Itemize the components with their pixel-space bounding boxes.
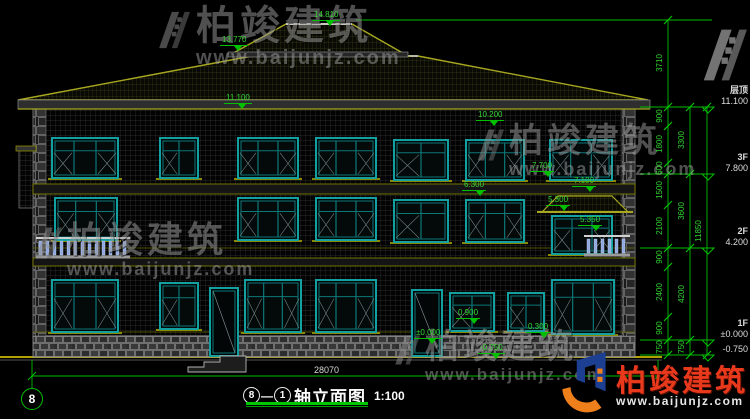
window [462,200,528,243]
window [462,140,528,181]
door [210,288,238,356]
dimension-value: 1500 [656,173,664,207]
watermark-logo-icon [704,30,747,81]
elevation-marker: ±0.000 [414,329,442,344]
window [48,138,122,179]
elevation-marker: -0.750 [478,344,505,359]
axis-dash: — [261,389,273,403]
axis-bubble-start: 8 [243,387,260,404]
elevation-marker: 7.700 [530,162,554,177]
title-scale: 1:100 [374,389,405,403]
window [241,280,305,333]
drawing-title: 8 — 1 轴立面图 1:100 [243,383,405,408]
level-label: 1F±0.000 [702,318,748,341]
elevation-marker: 0.300 [526,323,550,338]
window [546,140,616,181]
window [234,198,302,241]
cad-elevation-drawing: { "watermark": { "brand": "柏竣建筑", "url":… [0,0,750,419]
level-label: 3F7.800 [702,152,748,175]
window [48,280,122,333]
window [156,138,202,179]
window [312,280,380,333]
brand-logo: 柏竣建筑 www.baijunjz.com [558,350,750,419]
dimension-value: 2100 [656,209,664,243]
dimension-value: 4200 [678,277,686,311]
window [548,280,618,335]
window [234,138,302,179]
brand-url: www.baijunjz.com [616,394,744,408]
window [390,140,452,181]
upper-roof [228,24,408,57]
dimension-value: 3300 [678,123,686,157]
window [312,198,380,241]
axis-bubble-8: 8 [21,388,43,410]
elevation-marker: 14.810 [312,11,340,26]
axis-bubble-end: 1 [274,387,291,404]
elevation-marker: 7.100 [572,177,596,192]
overall-dimension: 28070 [314,365,339,375]
stone-base [33,336,635,357]
dimension-value: 900 [656,240,664,274]
elevation-marker: 5.350 [578,216,602,231]
window [156,283,202,330]
window [51,198,121,241]
main-roof [18,56,650,109]
level-label: 2F4.200 [702,226,748,249]
right-quoin [622,108,635,336]
dimension-value: 3600 [678,194,686,228]
level-label: 层顶11.100 [702,85,748,108]
title-text: 轴立面图 [294,383,366,408]
window [390,200,452,243]
elevation-marker: 13.770 [220,36,248,51]
brand-logo-icon [558,350,612,418]
elevation-marker: 11.100 [224,94,252,109]
dimension-value: 3710 [656,46,664,80]
elevation-marker: 10.200 [476,111,504,126]
window [312,138,380,179]
left-wall-projection [19,150,33,208]
elevation-marker: 0.900 [456,309,480,324]
left-quoin [33,108,46,336]
elevation-marker: 6.300 [462,181,486,196]
elevation-marker: 5.300 [546,196,570,211]
entry-steps [188,356,246,372]
dimension-value: 2400 [656,275,664,309]
dimension-ticks [664,16,711,359]
door [412,290,442,356]
